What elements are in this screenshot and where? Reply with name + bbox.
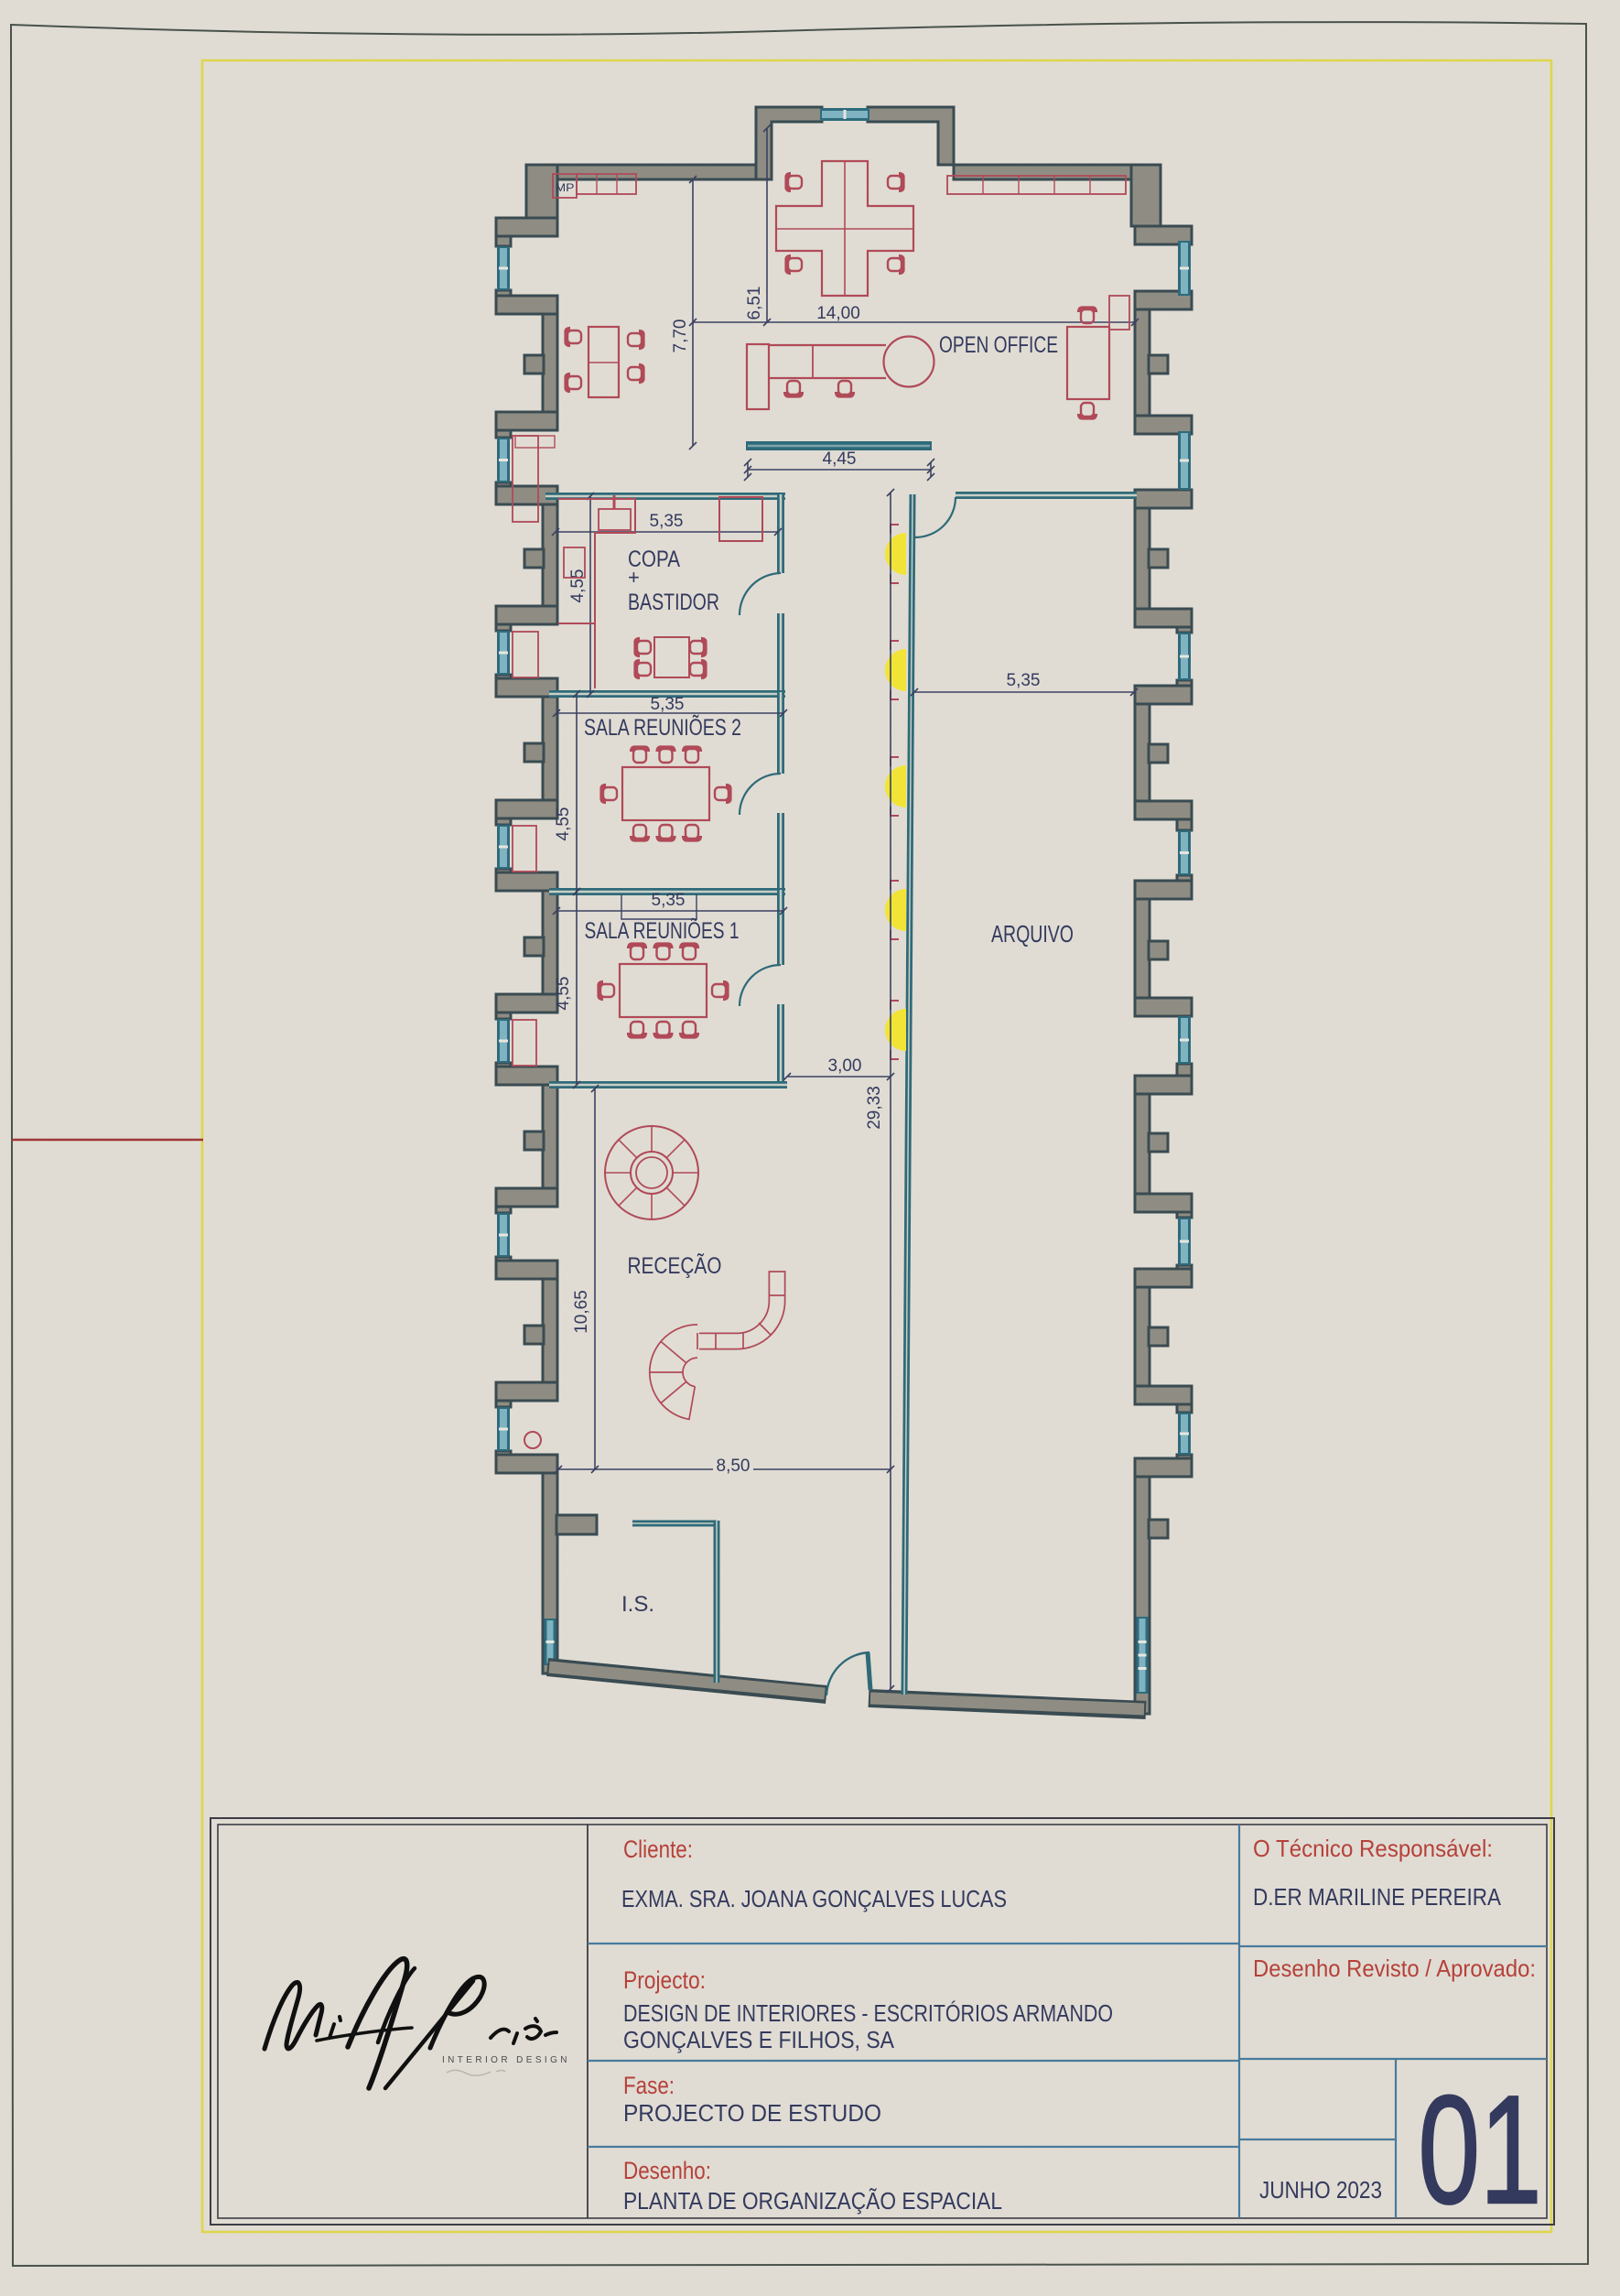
svg-text:29,33: 29,33 [865, 1086, 884, 1130]
svg-text:5,35: 5,35 [650, 512, 684, 531]
svg-text:PLANTA DE ORGANIZAÇÃO ESPACIAL: PLANTA DE ORGANIZAÇÃO ESPACIAL [623, 2187, 1002, 2215]
svg-text:Desenho:: Desenho: [623, 2157, 711, 2184]
svg-text:6,51: 6,51 [745, 287, 764, 320]
svg-text:D.ER MARILINE PEREIRA: D.ER MARILINE PEREIRA [1253, 1883, 1502, 1911]
svg-text:4,55: 4,55 [554, 807, 573, 841]
svg-text:4,45: 4,45 [823, 449, 857, 469]
svg-text:01: 01 [1419, 2063, 1542, 2236]
svg-text:Desenho Revisto / Aprovado:: Desenho Revisto / Aprovado: [1253, 1955, 1536, 1982]
svg-text:GONÇALVES E FILHOS, SA: GONÇALVES E FILHOS, SA [623, 2026, 895, 2053]
svg-text:SALA REUNIÕES 2: SALA REUNIÕES 2 [584, 714, 741, 741]
svg-text:INTERIOR DESIGN: INTERIOR DESIGN [442, 2055, 570, 2065]
svg-text:RECEÇÃO: RECEÇÃO [628, 1252, 722, 1279]
svg-text:Cliente:: Cliente: [623, 1836, 693, 1863]
svg-text:EXMA. SRA. JOANA GONÇALVES LUC: EXMA. SRA. JOANA GONÇALVES LUCAS [621, 1885, 1007, 1912]
svg-text:+: + [628, 566, 640, 589]
svg-text:I.S.: I.S. [621, 1592, 654, 1617]
svg-text:5,35: 5,35 [1007, 671, 1041, 690]
svg-text:Fase:: Fase: [623, 2072, 675, 2099]
svg-text:PROJECTO DE ESTUDO: PROJECTO DE ESTUDO [623, 2099, 881, 2127]
svg-text:14,00: 14,00 [816, 304, 860, 323]
svg-text:3,00: 3,00 [828, 1056, 862, 1076]
svg-text:Projecto:: Projecto: [623, 1966, 706, 1994]
svg-text:8,50: 8,50 [717, 1457, 751, 1476]
svg-text:4,55: 4,55 [554, 977, 573, 1011]
svg-text:7,70: 7,70 [671, 319, 690, 353]
svg-text:SALA REUNIÕES 1: SALA REUNIÕES 1 [585, 917, 740, 944]
svg-text:MP: MP [556, 181, 575, 194]
svg-text:DESIGN DE INTERIORES - ESCRITÓ: DESIGN DE INTERIORES - ESCRITÓRIOS ARMAN… [623, 1999, 1113, 2027]
svg-text:5,35: 5,35 [651, 695, 685, 714]
svg-text:BASTIDOR: BASTIDOR [628, 590, 719, 615]
svg-text:O Técnico Responsável:: O Técnico Responsável: [1253, 1835, 1493, 1862]
svg-text:10,65: 10,65 [572, 1290, 591, 1334]
svg-text:5,35: 5,35 [652, 891, 686, 910]
svg-text:ARQUIVO: ARQUIVO [991, 920, 1074, 948]
svg-text:JUNHO 2023: JUNHO 2023 [1259, 2176, 1382, 2204]
svg-text:OPEN OFFICE: OPEN OFFICE [939, 332, 1058, 358]
